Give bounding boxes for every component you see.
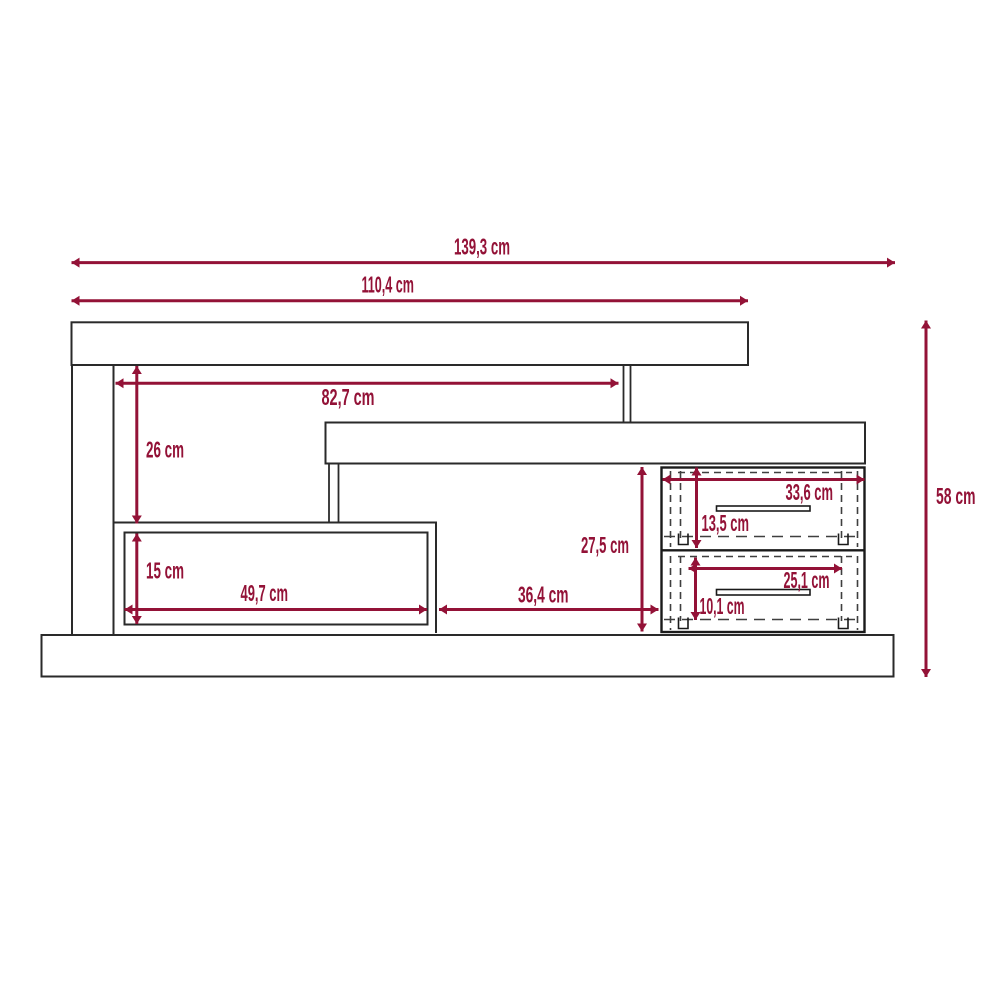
svg-text:36,4 cm: 36,4 cm [518,582,569,608]
svg-text:49,7 cm: 49,7 cm [241,580,289,606]
svg-text:13,5 cm: 13,5 cm [702,510,750,536]
svg-text:26 cm: 26 cm [146,437,184,463]
svg-text:10,1 cm: 10,1 cm [700,593,745,619]
svg-text:110,4 cm: 110,4 cm [362,272,415,298]
svg-text:27,5 cm: 27,5 cm [581,532,629,558]
svg-text:139,3 cm: 139,3 cm [454,234,510,260]
svg-text:25,1 cm: 25,1 cm [784,567,830,593]
svg-text:15 cm: 15 cm [146,558,184,584]
svg-text:33,6 cm: 33,6 cm [786,479,834,505]
svg-text:58 cm: 58 cm [936,483,976,509]
svg-text:82,7 cm: 82,7 cm [322,384,375,410]
